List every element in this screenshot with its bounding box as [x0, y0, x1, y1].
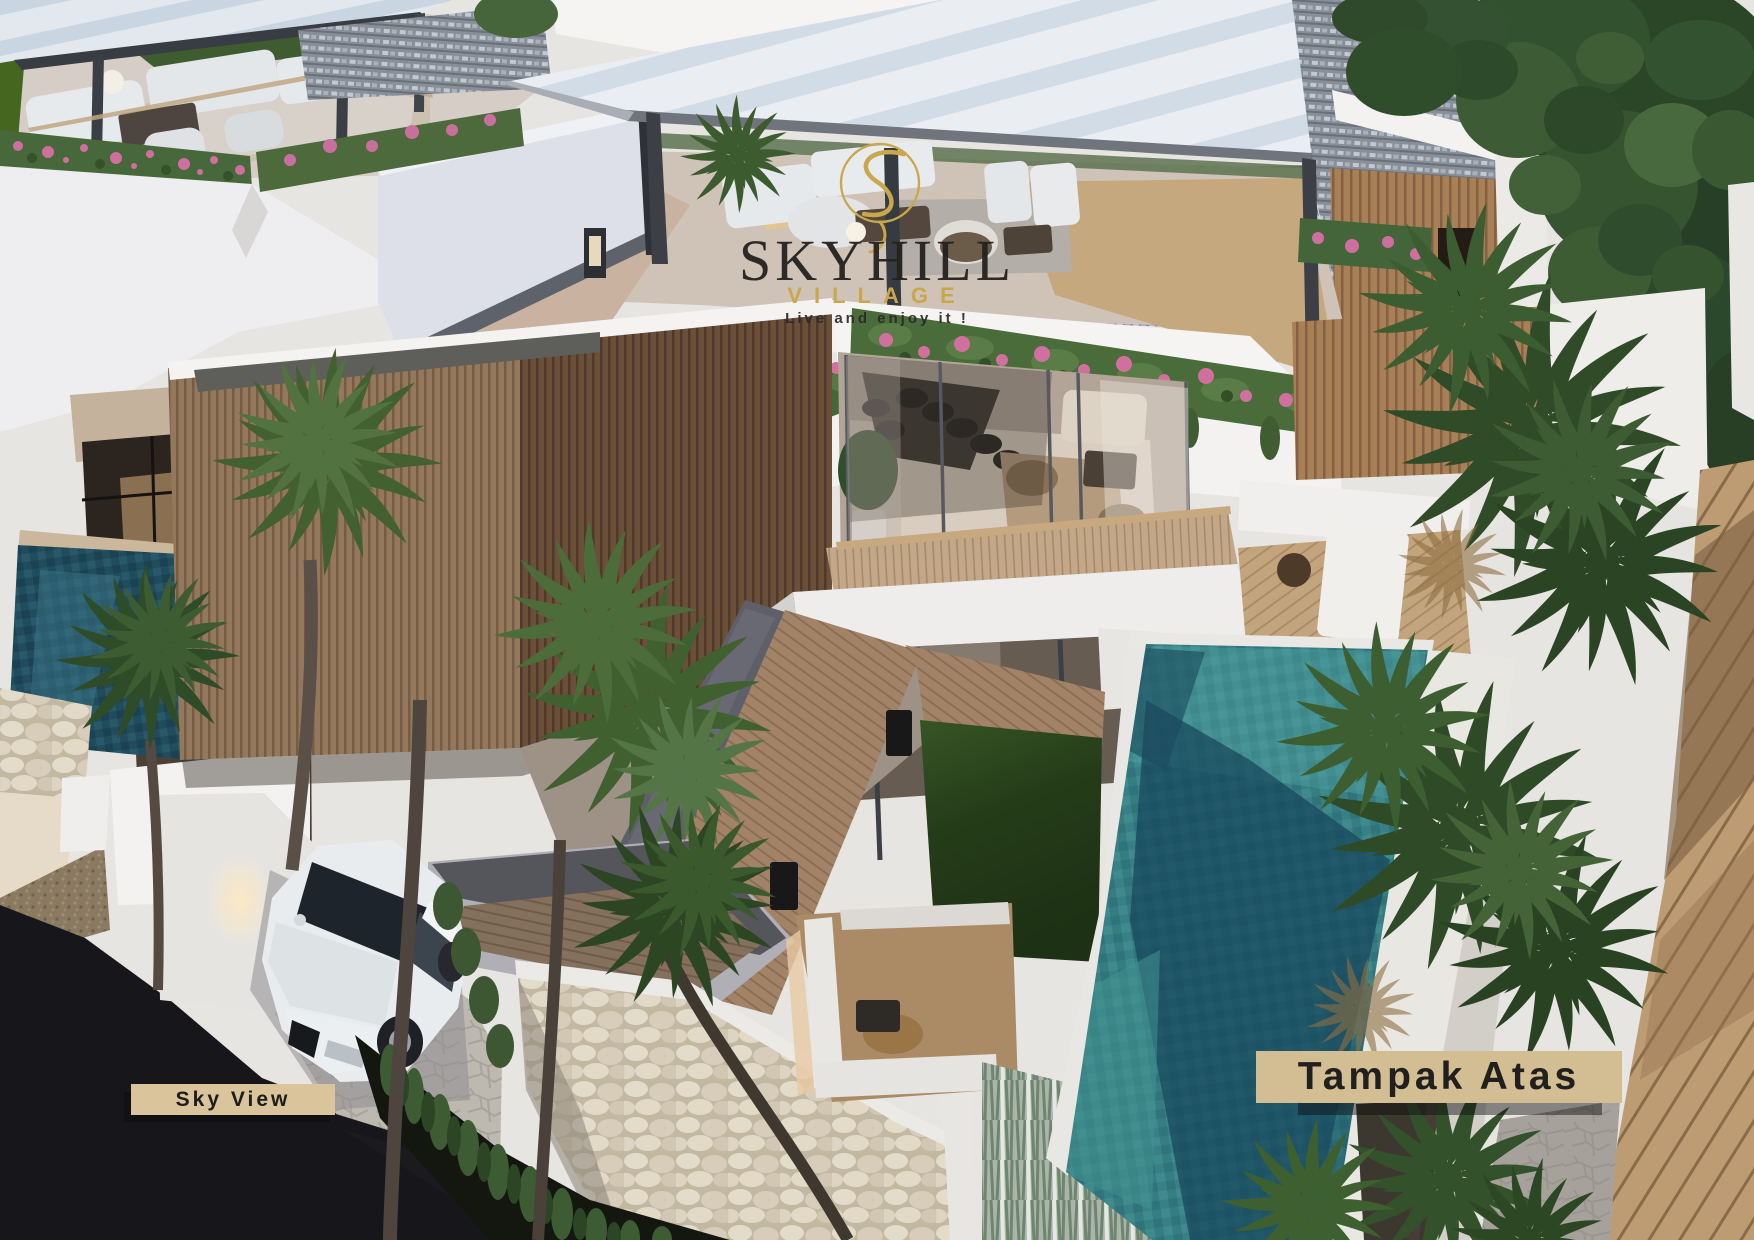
svg-text:Live and enjoy it !: Live and enjoy it !: [785, 310, 969, 327]
svg-text:Sky View: Sky View: [176, 1088, 291, 1111]
svg-text:VILLAGE: VILLAGE: [787, 283, 966, 308]
svg-text:Tampak Atas: Tampak Atas: [1298, 1055, 1580, 1098]
